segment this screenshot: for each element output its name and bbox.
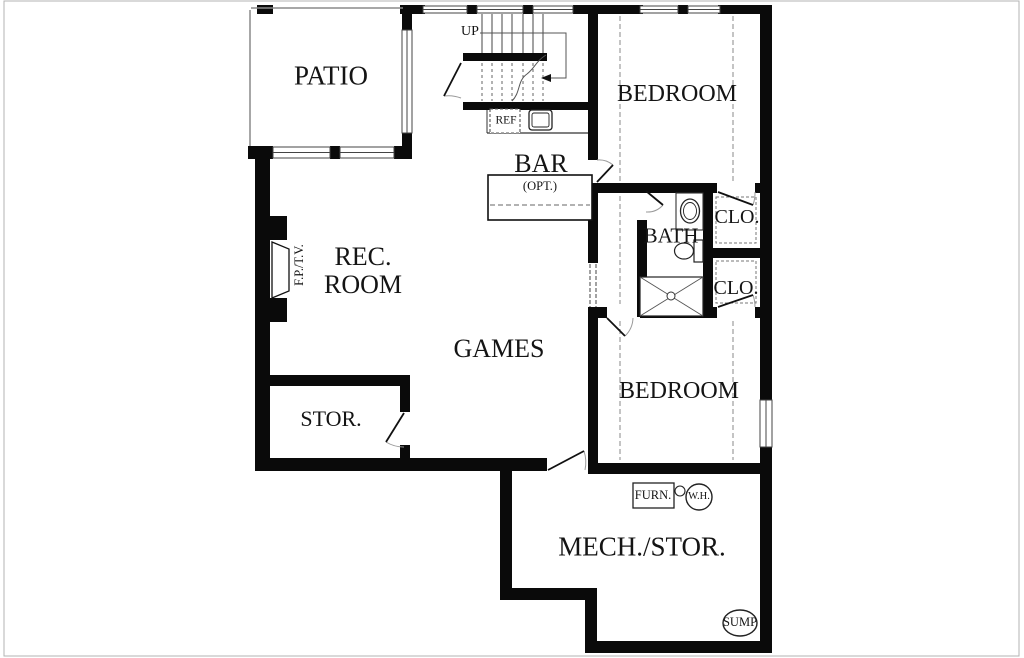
- door-leaf: [646, 191, 663, 205]
- wall-segment: [703, 248, 765, 258]
- door-leaf: [548, 451, 584, 470]
- wall-segment: [755, 183, 765, 193]
- wall-segment: [467, 5, 477, 14]
- furnace-icon: [633, 483, 674, 508]
- door-leaf: [386, 413, 404, 442]
- door-swing-arc: [625, 318, 633, 336]
- door-leaf: [597, 165, 613, 182]
- door-leaf: [444, 63, 461, 96]
- wall-segment: [255, 458, 547, 471]
- wall-segment: [588, 183, 717, 193]
- door-swing-arc: [646, 205, 663, 212]
- wall-segment: [394, 146, 412, 159]
- wall-segment: [588, 310, 598, 474]
- wall-segment: [760, 5, 772, 400]
- wall-segment: [585, 641, 772, 653]
- sump-icon: [723, 610, 757, 636]
- wall-segment: [588, 14, 598, 160]
- water-heater-icon: [686, 484, 712, 510]
- wall-segment: [500, 588, 597, 600]
- wall-segment: [500, 458, 512, 600]
- toilet-icon: [675, 243, 694, 259]
- wall-segment: [257, 5, 273, 14]
- wall-segment: [402, 5, 412, 32]
- floor-plan-image: PATIOUPREFBAR(OPT.)BEDROOMBATHCLO.CLO.RE…: [0, 0, 1024, 658]
- wall-segment: [588, 463, 772, 474]
- wall-segment: [255, 148, 270, 471]
- door-leaf: [718, 192, 753, 205]
- door-swing-arc: [584, 451, 586, 470]
- shower-drain: [667, 292, 675, 300]
- wall-segment: [330, 146, 340, 159]
- wall-segment: [248, 146, 273, 159]
- wall-segment: [463, 102, 598, 110]
- wall-segment: [597, 5, 643, 14]
- wall-segment: [258, 375, 410, 386]
- toilet-icon: [694, 240, 703, 262]
- door-swing-arc: [753, 192, 755, 205]
- wall-segment: [270, 298, 287, 322]
- fireplace-icon: [272, 242, 289, 298]
- pipe-icon: [675, 486, 685, 496]
- wall-segment: [678, 5, 688, 14]
- floor-plan-drawing: [0, 0, 1024, 658]
- wall-segment: [755, 307, 765, 318]
- bar-counter: [488, 175, 592, 220]
- door-leaf: [607, 318, 625, 336]
- door-leaf: [718, 295, 753, 307]
- wall-segment: [463, 53, 547, 61]
- door-swing-arc: [597, 160, 613, 165]
- refrigerator-icon: [490, 109, 520, 133]
- stair-break-line: [512, 55, 546, 101]
- wall-segment: [523, 5, 533, 14]
- wall-segment: [588, 307, 607, 318]
- door-swing-arc: [444, 96, 461, 98]
- wall-segment: [400, 386, 410, 412]
- wall-segment: [637, 183, 647, 191]
- wall-segment: [760, 447, 772, 653]
- wall-segment: [270, 216, 287, 240]
- door-swing-arc: [753, 295, 755, 307]
